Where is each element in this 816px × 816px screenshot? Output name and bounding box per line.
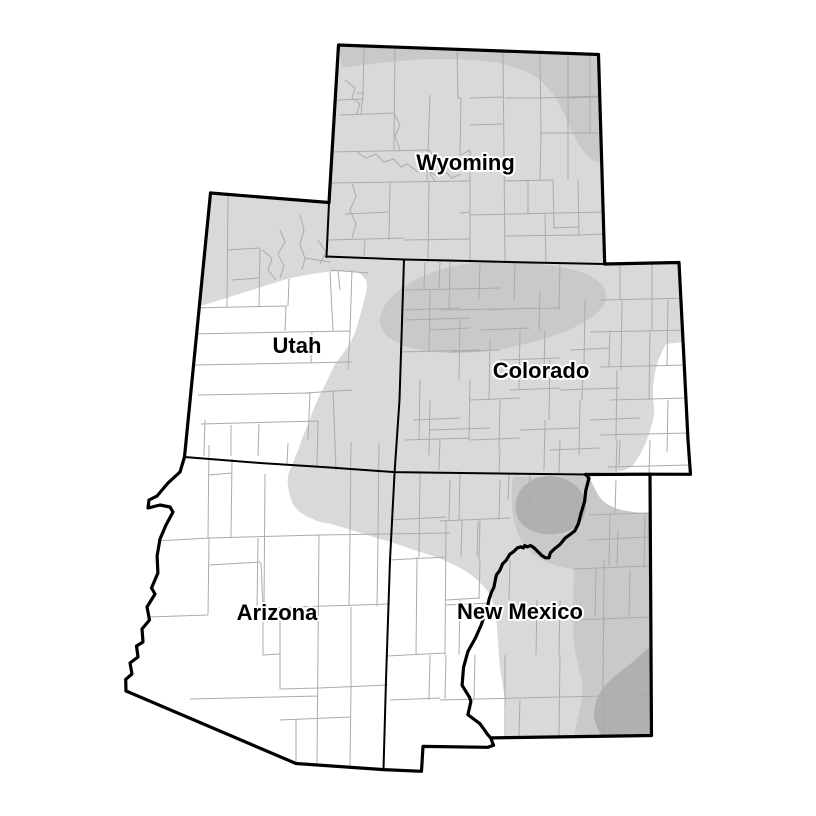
svg-text:Colorado: Colorado [493, 358, 590, 383]
svg-text:Utah: Utah [273, 333, 322, 358]
svg-text:Wyoming: Wyoming [416, 150, 515, 175]
svg-text:Arizona: Arizona [237, 600, 318, 625]
svg-text:New Mexico: New Mexico [457, 599, 583, 624]
